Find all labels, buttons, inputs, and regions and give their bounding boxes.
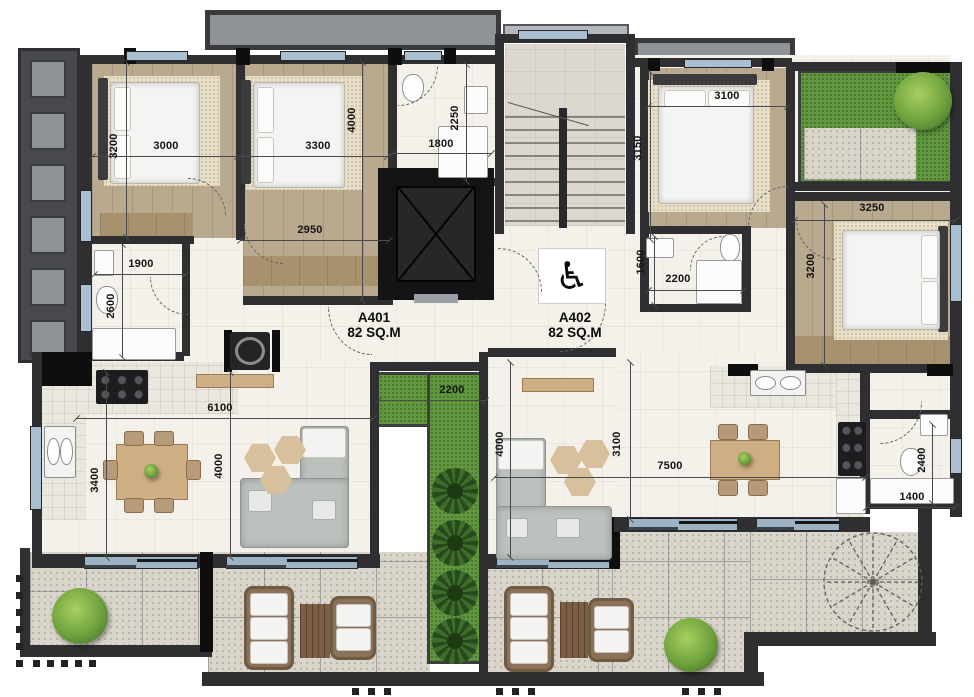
pillow <box>257 137 274 183</box>
window <box>80 190 92 242</box>
sliding-door <box>84 556 198 569</box>
pillow <box>921 281 938 325</box>
railing-post <box>61 660 68 667</box>
dim-line <box>932 424 933 504</box>
dim-line <box>362 62 363 302</box>
throw-blanket <box>302 428 346 458</box>
dim-label: 3250 <box>859 202 884 214</box>
outdoor-cushion <box>510 617 548 640</box>
kitchen-counter <box>836 478 866 514</box>
railing-post <box>16 626 23 633</box>
railing-post <box>47 660 54 667</box>
dim-label: 2200 <box>439 384 464 396</box>
window <box>950 224 962 302</box>
dim-line <box>94 274 186 275</box>
railing-post <box>528 688 535 695</box>
wall <box>479 556 488 676</box>
door-jamb <box>927 364 953 376</box>
kitchen-sink <box>44 426 76 478</box>
dim-line <box>654 236 655 306</box>
outdoor-cushion <box>336 628 371 651</box>
closet-bedroom4 <box>794 336 952 366</box>
dim-label: 3100 <box>611 431 623 456</box>
wall <box>488 348 616 357</box>
potted-plant <box>664 618 718 672</box>
apartment-id: A401 <box>347 310 400 325</box>
outdoor-armchair <box>588 598 634 662</box>
dim-label: 3000 <box>153 140 178 152</box>
wall <box>495 34 504 234</box>
dim-line <box>76 418 374 419</box>
spiral-staircase <box>818 530 928 638</box>
table-plant <box>738 452 751 465</box>
pillow <box>114 87 131 131</box>
chair <box>154 431 174 446</box>
chair <box>124 431 144 446</box>
dim-line <box>648 290 744 291</box>
terrace-roof-corner <box>804 128 916 180</box>
apartment-label-a402: A402 82 SQ.M <box>548 310 601 340</box>
sliding-door <box>226 556 358 569</box>
dim-label: 4000 <box>346 107 358 132</box>
outdoor-table <box>300 604 330 658</box>
window <box>950 438 962 474</box>
chair <box>154 498 174 513</box>
chair <box>124 498 144 513</box>
dim-line <box>122 244 123 358</box>
dim-label: 3300 <box>305 140 330 152</box>
wall <box>370 362 379 558</box>
dim-line <box>494 477 866 478</box>
railing-post <box>16 592 23 599</box>
outdoor-cushion <box>510 641 548 664</box>
railing-post <box>384 688 391 695</box>
elevator-car <box>396 186 476 282</box>
wall <box>20 645 212 657</box>
wall <box>792 182 956 191</box>
louver-pane <box>30 112 66 150</box>
table-plant <box>144 464 158 478</box>
outdoor-cushion <box>250 593 288 616</box>
outdoor-cushion <box>250 641 288 664</box>
outdoor-armchair <box>330 596 376 660</box>
door-jamb <box>272 330 280 372</box>
bed <box>842 230 940 330</box>
dim-line <box>794 220 956 221</box>
wall <box>92 236 194 244</box>
window <box>30 426 42 510</box>
dim-line <box>240 240 390 241</box>
door-jamb <box>648 58 660 71</box>
window <box>280 51 346 61</box>
washing-machine <box>230 332 270 370</box>
dim-line <box>466 64 467 182</box>
outdoor-table <box>560 602 588 658</box>
dim-label: 6100 <box>207 402 232 414</box>
railing-post <box>512 688 519 695</box>
bathtub <box>92 328 176 360</box>
wall <box>786 192 956 201</box>
dim-label: 3400 <box>89 467 101 492</box>
sliding-door <box>628 518 738 531</box>
bed <box>253 82 345 188</box>
dim-label: 2400 <box>916 447 928 472</box>
dim-label: 1400 <box>899 491 924 503</box>
wall <box>479 352 488 558</box>
window <box>80 284 92 332</box>
dim-label: 4000 <box>494 431 506 456</box>
dim-line <box>866 507 956 508</box>
apartment-area: 82 SQ.M <box>548 325 601 340</box>
potted-plant <box>52 588 108 644</box>
pillow <box>257 87 274 133</box>
wall <box>243 296 393 305</box>
railing-post <box>33 660 40 667</box>
accessible-area: ♿ <box>538 248 606 304</box>
wall-pillar <box>200 552 213 652</box>
wheelchair-icon: ♿ <box>555 257 589 295</box>
headboard <box>98 78 108 180</box>
railing-post <box>352 688 359 695</box>
floor-plan: ♿ <box>0 0 974 697</box>
shower <box>438 126 488 178</box>
dim-label: 1600 <box>635 249 647 274</box>
louver-pane <box>30 268 66 306</box>
outdoor-cushion <box>250 617 288 640</box>
dim-line <box>240 156 388 157</box>
dim-label: 3200 <box>805 253 817 278</box>
outdoor-cushion <box>594 630 629 653</box>
outdoor-cushion <box>336 604 371 627</box>
palm-plant <box>432 520 478 566</box>
outdoor-cushion <box>594 606 629 629</box>
chair <box>718 480 738 496</box>
dim-line <box>824 204 825 366</box>
dim-line <box>126 62 127 238</box>
door-jamb <box>762 58 774 71</box>
pillow <box>664 90 706 107</box>
dim-label: 1900 <box>128 258 153 270</box>
bed <box>658 86 754 204</box>
railing-post <box>698 688 705 695</box>
window <box>518 30 588 40</box>
railing-post <box>682 688 689 695</box>
apartment-label-a401: A401 82 SQ.M <box>347 310 400 340</box>
railing-post <box>75 660 82 667</box>
chair <box>186 460 201 480</box>
wall <box>370 362 488 371</box>
dim-label: 7500 <box>657 460 682 472</box>
dim-line <box>392 153 492 154</box>
dim-label: 2200 <box>665 273 690 285</box>
dim-line <box>510 362 511 558</box>
dim-line <box>378 400 486 401</box>
railing-post <box>16 643 23 650</box>
window <box>684 59 752 68</box>
louver-pane <box>30 60 66 98</box>
tree <box>894 72 952 130</box>
stove <box>96 370 148 404</box>
wall <box>388 55 397 186</box>
window <box>404 51 442 61</box>
chair <box>748 480 768 496</box>
palm-plant <box>432 468 478 514</box>
bed <box>110 82 200 184</box>
apartment-id: A402 <box>548 310 601 325</box>
railing-post <box>16 575 23 582</box>
railing-post <box>16 660 23 667</box>
dim-label: 3100 <box>714 90 739 102</box>
chair <box>718 424 738 440</box>
dim-line <box>650 72 651 240</box>
pillow <box>921 235 938 279</box>
bathroom-sink <box>464 86 488 114</box>
sideboard <box>196 374 274 388</box>
window <box>126 51 188 61</box>
stove <box>838 422 866 476</box>
stair-rail <box>559 108 567 228</box>
apartment-area: 82 SQ.M <box>347 325 400 340</box>
door-jamb <box>388 48 402 65</box>
headboard <box>241 80 251 184</box>
wall <box>786 62 795 196</box>
wall <box>20 548 30 652</box>
wall <box>744 632 758 686</box>
outdoor-cushion <box>510 593 548 616</box>
louver-pane <box>30 164 66 202</box>
closet-bedroom1 <box>100 213 192 238</box>
outdoor-sofa <box>244 586 294 670</box>
outdoor-sofa <box>504 586 554 672</box>
railing-post <box>714 688 721 695</box>
railing-post <box>496 688 503 695</box>
dim-line <box>648 106 788 107</box>
railing-post <box>89 660 96 667</box>
dim-label: 4000 <box>213 453 225 478</box>
door-jamb <box>236 48 250 65</box>
closet-bedroom2 <box>243 256 390 286</box>
chair <box>748 424 768 440</box>
dim-label: 3150 <box>632 135 644 160</box>
dim-line <box>106 372 107 558</box>
dim-label: 2250 <box>449 105 461 130</box>
cushion <box>312 500 336 520</box>
palm-plant <box>432 618 478 664</box>
kitchen-sink <box>750 370 806 396</box>
dim-line <box>230 372 231 558</box>
railing-post <box>16 609 23 616</box>
dim-label: 1800 <box>428 138 453 150</box>
wall <box>742 226 751 312</box>
door-jamb <box>444 48 456 64</box>
dim-label: 2950 <box>297 224 322 236</box>
palm-plant <box>432 570 478 616</box>
bathroom-sink <box>646 238 674 258</box>
sideboard <box>522 378 594 392</box>
wall <box>640 226 746 234</box>
louver-pane <box>30 216 66 254</box>
elevator-door <box>414 294 458 303</box>
railing-post <box>368 688 375 695</box>
dim-line <box>630 362 631 520</box>
headboard <box>653 74 757 85</box>
dim-label: 3200 <box>108 133 120 158</box>
cushion <box>556 518 580 538</box>
roof-canopy <box>205 10 501 50</box>
dim-label: 2600 <box>105 293 117 318</box>
